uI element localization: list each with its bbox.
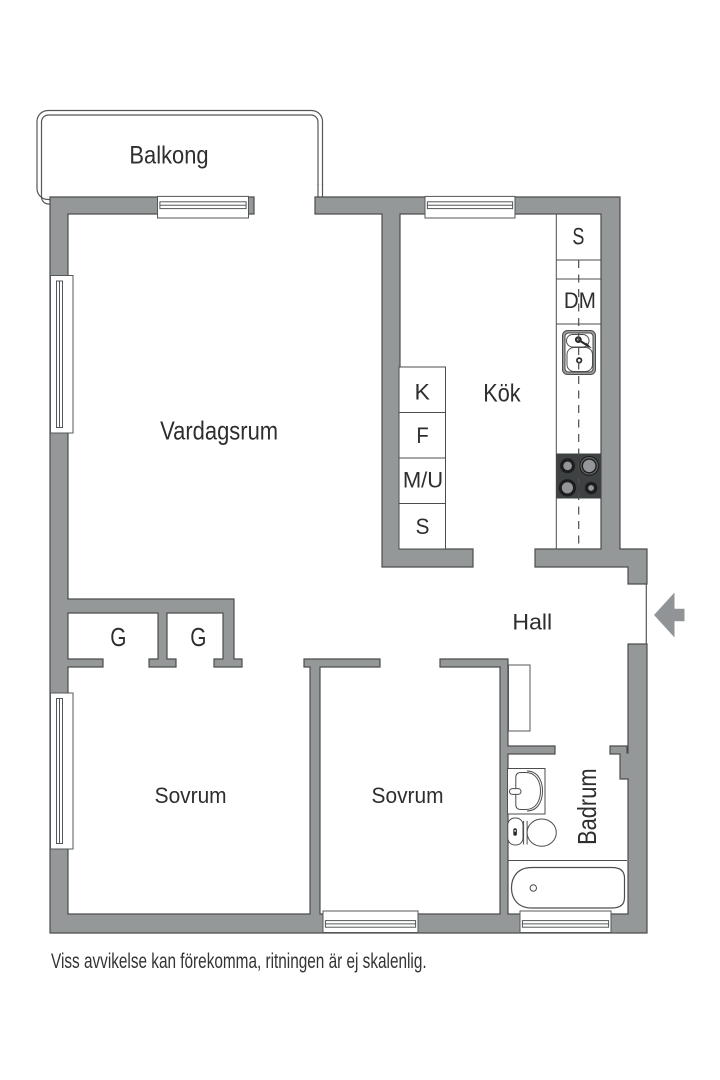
svg-text:Badrum: Badrum: [573, 768, 602, 844]
svg-text:K: K: [414, 380, 429, 404]
svg-text:Sovrum: Sovrum: [372, 784, 444, 809]
svg-text:Hall: Hall: [512, 610, 552, 634]
svg-text:Viss avvikelse kan förekomma,: Viss avvikelse kan förekomma, ritningen …: [51, 949, 427, 973]
svg-text:M/U: M/U: [403, 468, 443, 493]
svg-text:G: G: [190, 623, 206, 652]
svg-text:F: F: [416, 424, 428, 448]
svg-text:S: S: [416, 514, 430, 539]
svg-text:Sovrum: Sovrum: [155, 784, 227, 809]
svg-text:S: S: [572, 224, 584, 250]
svg-text:Balkong: Balkong: [129, 141, 208, 169]
svg-text:Kök: Kök: [483, 379, 521, 407]
svg-text:G: G: [110, 623, 126, 652]
svg-text:DM: DM: [564, 289, 596, 314]
svg-text:Vardagsrum: Vardagsrum: [160, 417, 278, 446]
